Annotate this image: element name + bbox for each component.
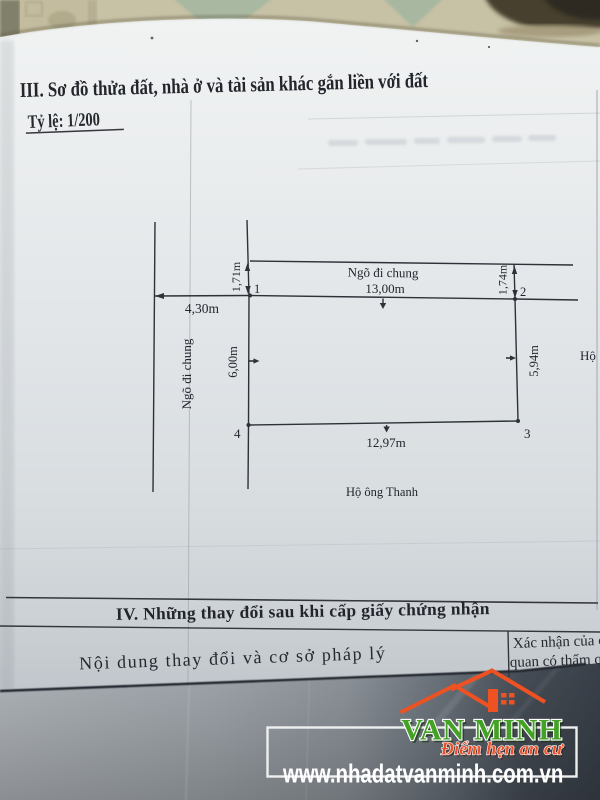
svg-text:3: 3 xyxy=(524,426,531,441)
svg-text:Tỷ lệ: 1/200: Tỷ lệ: 1/200 xyxy=(27,108,100,132)
svg-text:Hộ ông Thanh: Hộ ông Thanh xyxy=(346,485,419,499)
svg-text:5,94m: 5,94m xyxy=(527,345,541,377)
svg-text:Điểm hẹn an cư: Điểm hẹn an cư xyxy=(440,739,564,759)
svg-text:Ngõ đi chung: Ngõ đi chung xyxy=(348,265,419,281)
svg-text:6,00m: 6,00m xyxy=(226,346,240,378)
svg-text:2: 2 xyxy=(520,285,526,299)
svg-text:Xác nhận của c: Xác nhận của c xyxy=(513,633,600,652)
svg-text:1,74m: 1,74m xyxy=(496,264,510,295)
svg-text:13,00m: 13,00m xyxy=(365,281,404,296)
svg-text:4: 4 xyxy=(234,426,241,441)
svg-text:1,71m: 1,71m xyxy=(229,261,243,292)
svg-text:Ngõ đi chung: Ngõ đi chung xyxy=(179,338,194,409)
svg-text:Hộ: Hộ xyxy=(580,348,596,363)
svg-text:4,30m: 4,30m xyxy=(185,301,220,316)
svg-text:12,97m: 12,97m xyxy=(366,435,405,450)
svg-text:1: 1 xyxy=(254,282,260,296)
svg-text:www.nhadatvanminh.com.vn: www.nhadatvanminh.com.vn xyxy=(282,759,563,788)
